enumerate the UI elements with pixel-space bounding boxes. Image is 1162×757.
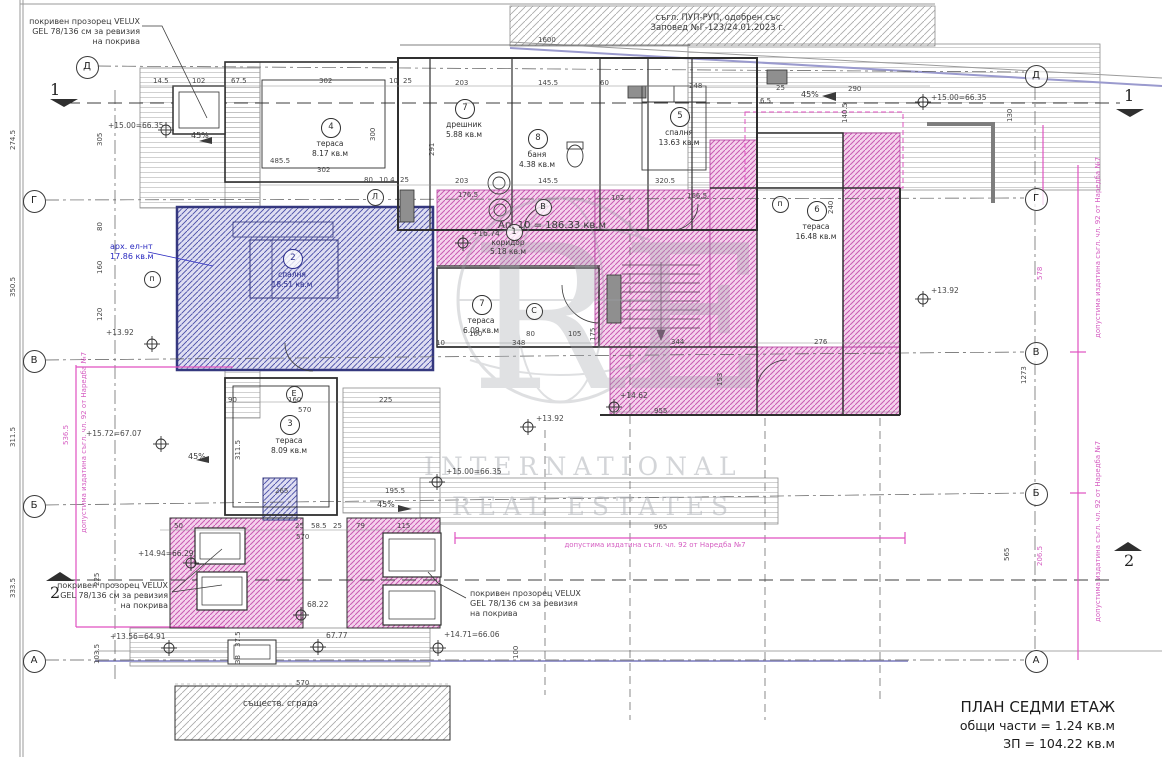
dimension-label: 350.5 xyxy=(9,277,18,297)
slope-45-b: 45% xyxy=(801,90,819,100)
corridor-label: коридор 5.18 кв.м xyxy=(490,238,526,256)
dimension-label: 203 xyxy=(455,79,468,88)
room-name: дрешник xyxy=(446,120,482,129)
axis-circle-Г: Г xyxy=(23,190,46,213)
dimension-label: 570 xyxy=(296,533,309,542)
axis-circle-Д: Д xyxy=(76,56,99,79)
room-number: 3 xyxy=(280,415,300,435)
dimension-label: 100 xyxy=(512,646,521,659)
dimension-label: 103.5 xyxy=(93,644,102,664)
dimension-label: 160 xyxy=(288,396,301,405)
existing-building-label: съществ. сграда xyxy=(243,699,318,709)
section-mark-2: 2 xyxy=(1124,551,1134,571)
dimension-label: 105 xyxy=(568,330,581,339)
elevation-label: +14.62 xyxy=(620,391,648,400)
room-number: 6 xyxy=(807,201,827,221)
axis-circle-Л: Л xyxy=(367,189,384,206)
elevation-label: +15.72=67.07 xyxy=(86,429,142,438)
dimension-label: 225 xyxy=(379,396,392,405)
dimension-label: 344 xyxy=(671,338,684,347)
dimension-label: 25 xyxy=(403,77,412,86)
elevation-label: +16.74 xyxy=(472,229,500,238)
plan-labels: 4тераса8.17 кв.м7дрешник5.88 кв.м8баня4.… xyxy=(0,0,1162,757)
elevation-label: +15.00=66.35 xyxy=(108,121,164,130)
dimension-label: 25 xyxy=(776,84,785,93)
axis-circle-В: В xyxy=(535,199,552,216)
regulation-note-right-1: допустима издатина съгл. чл. 92 от Наред… xyxy=(1094,157,1103,338)
dimension-label: 176.5 xyxy=(458,191,478,200)
dimension-label: 160 xyxy=(96,261,105,274)
elevation-label: +14.94=66.29 xyxy=(138,549,194,558)
room-area: 18.51 кв.м xyxy=(272,280,313,289)
axis-circle-А: А xyxy=(23,650,46,673)
elevation-label: +13.56=64.91 xyxy=(110,632,166,641)
dimension-label: 276 xyxy=(814,338,827,347)
velux-note-bottom-left: покривен прозорец VELUX GEL 78/136 см за… xyxy=(57,581,168,610)
slope-45-c: 45% xyxy=(188,452,206,462)
dimension-label: 320.5 xyxy=(655,177,675,186)
dimension-label: 145.5 xyxy=(538,177,558,186)
dimension-label: 25 xyxy=(333,522,342,531)
elevation-label: +13.92 xyxy=(536,414,564,423)
elevation-label: 68.22 xyxy=(307,600,328,609)
dimension-label: 565 xyxy=(1003,548,1012,561)
dimension-label: 153 xyxy=(716,373,725,386)
regulation-note-left: допустима издатина съгл. чл. 92 от Наред… xyxy=(80,352,89,533)
dimension-label: 570 xyxy=(296,679,309,688)
dimension-label: 265 xyxy=(275,487,288,496)
dimension-label: 300 xyxy=(369,128,378,141)
axis-circle-Д: Д xyxy=(1025,65,1048,88)
dimension-label: 80 xyxy=(526,330,535,339)
room-area: 4.38 кв.м xyxy=(519,160,555,169)
elevation-label: +15.00=66.35 xyxy=(931,93,987,102)
dimension-label: 160 xyxy=(469,330,482,339)
elevation-label: +13.92 xyxy=(106,328,134,337)
room-area: 16.48 кв.м xyxy=(796,232,837,241)
axis-circle-С: С xyxy=(526,303,543,320)
dimension-label: 102 xyxy=(611,194,624,203)
dimension-label: 206.5 xyxy=(1036,546,1045,566)
dimension-label: 274.5 xyxy=(9,130,18,150)
axis-circle-п: п xyxy=(772,196,789,213)
dimension-label: 1600 xyxy=(538,36,556,45)
dimension-label: 485.5 xyxy=(270,157,290,166)
dimension-label: 248 xyxy=(689,82,702,91)
dimension-label: 120 xyxy=(96,308,105,321)
dimension-label: 965 xyxy=(654,523,667,532)
axis-circle-Б: Б xyxy=(23,495,46,518)
dimension-label: 175 xyxy=(589,328,598,341)
room-number: 5 xyxy=(670,107,690,127)
axis-circle-А: А xyxy=(1025,650,1048,673)
room-name: тераса xyxy=(275,436,302,445)
dimension-label: 578 xyxy=(1036,267,1045,280)
dimension-label: 38 xyxy=(234,655,243,664)
room-name: спалня xyxy=(278,270,306,279)
velux-note-bottom-center: покривен прозорец VELUX GEL 78/136 см за… xyxy=(470,589,581,618)
axis-circle-В: В xyxy=(1025,342,1048,365)
regulation-note-right-2: допустима издатина съгл. чл. 92 от Наред… xyxy=(1094,441,1103,622)
dimension-label: 25 xyxy=(400,176,409,185)
section-mark-1: 1 xyxy=(50,80,60,100)
dimension-label: 145.5 xyxy=(538,79,558,88)
floor-plan: RE INTERNATIONAL REAL ESTATES ПЛАН СЕДМИ… xyxy=(0,0,1162,757)
room-area: 8.17 кв.м xyxy=(312,149,348,158)
dimension-label: 6.5 xyxy=(760,97,771,106)
room-number: 8 xyxy=(528,129,548,149)
dimension-label: 203 xyxy=(455,177,468,186)
dimension-label: 240 xyxy=(827,201,836,214)
dimension-label: 333.5 xyxy=(9,578,18,598)
elevation-label: +13.92 xyxy=(931,286,959,295)
dimension-label: 115 xyxy=(397,522,410,531)
dimension-label: 311.5 xyxy=(9,427,18,447)
dimension-label: 90 xyxy=(228,396,237,405)
dimension-label: 302 xyxy=(319,77,332,86)
dimension-label: 37.5 xyxy=(234,631,243,647)
axis-circle-В: В xyxy=(23,350,46,373)
dimension-label: 348 xyxy=(512,339,525,348)
dimension-label: 130 xyxy=(1006,109,1015,122)
dimension-label: 58.5 xyxy=(311,522,327,531)
room-area: 5.88 кв.м xyxy=(446,130,482,139)
room-area: 8.09 кв.м xyxy=(271,446,307,455)
dimension-label: 305 xyxy=(96,133,105,146)
dimension-label: 80 xyxy=(364,176,373,185)
apartment-total: Ап. 10 = 186.33 кв.м xyxy=(498,220,606,232)
room-name: тераса xyxy=(316,139,343,148)
dimension-label: 79 xyxy=(356,522,365,531)
velux-note-top-left: покривен прозорец VELUX GEL 78/136 см за… xyxy=(29,17,140,46)
dimension-label: 166.5 xyxy=(687,192,707,201)
slope-45-d: 45% xyxy=(377,500,395,510)
room-name: баня xyxy=(528,150,547,159)
approval-note: съгл. ПУП-РУП, одобрен със Заповед №Г-12… xyxy=(651,13,786,34)
room-name: тераса xyxy=(467,316,494,325)
dimension-label: 50 xyxy=(174,522,183,531)
elevation-label: +15.00=66.35 xyxy=(446,467,502,476)
axis-circle-Г: Г xyxy=(1025,188,1048,211)
dimension-label: 10.4 xyxy=(379,176,395,185)
dimension-label: 14.5 xyxy=(153,77,169,86)
dimension-label: 60 xyxy=(600,79,609,88)
dimension-label: 536.5 xyxy=(62,425,71,445)
slope-45-a: 45% xyxy=(191,131,209,141)
room-name: тераса xyxy=(802,222,829,231)
dimension-label: 140.5 xyxy=(841,103,850,123)
dimension-label: 67.5 xyxy=(231,77,247,86)
room-name: спалня xyxy=(665,128,693,137)
dimension-label: 311.5 xyxy=(234,440,243,460)
dimension-label: 80 xyxy=(96,222,105,231)
dimension-label: 291 xyxy=(428,143,437,156)
dimension-label: 10 xyxy=(436,339,445,348)
regulation-note-mid: допустима издатина съгл. чл. 92 от Наред… xyxy=(564,541,745,550)
dimension-label: 25 xyxy=(295,522,304,531)
dimension-label: 570 xyxy=(298,406,311,415)
room-number: 2 xyxy=(283,249,303,269)
room-number: 7 xyxy=(455,99,475,119)
elevation-label: +14.71=66.06 xyxy=(444,630,500,639)
elevation-label: 67.77 xyxy=(326,631,347,640)
dimension-label: 302 xyxy=(317,166,330,175)
room-number: 7 xyxy=(472,295,492,315)
dimension-label: 1273 xyxy=(1020,366,1029,384)
dimension-label: 290 xyxy=(848,85,861,94)
room-area: 13.63 кв.м xyxy=(659,138,700,147)
dimension-label: 955 xyxy=(654,407,667,416)
dimension-label: 195.5 xyxy=(385,487,405,496)
dimension-label: 10 xyxy=(389,77,398,86)
dimension-label: 102 xyxy=(192,77,205,86)
axis-circle-п: п xyxy=(144,271,161,288)
arch-element-note: арх. ел-нт 17.86 кв.м xyxy=(110,242,154,262)
axis-circle-Б: Б xyxy=(1025,483,1048,506)
section-mark-1: 1 xyxy=(1124,86,1134,106)
room-number: 4 xyxy=(321,118,341,138)
